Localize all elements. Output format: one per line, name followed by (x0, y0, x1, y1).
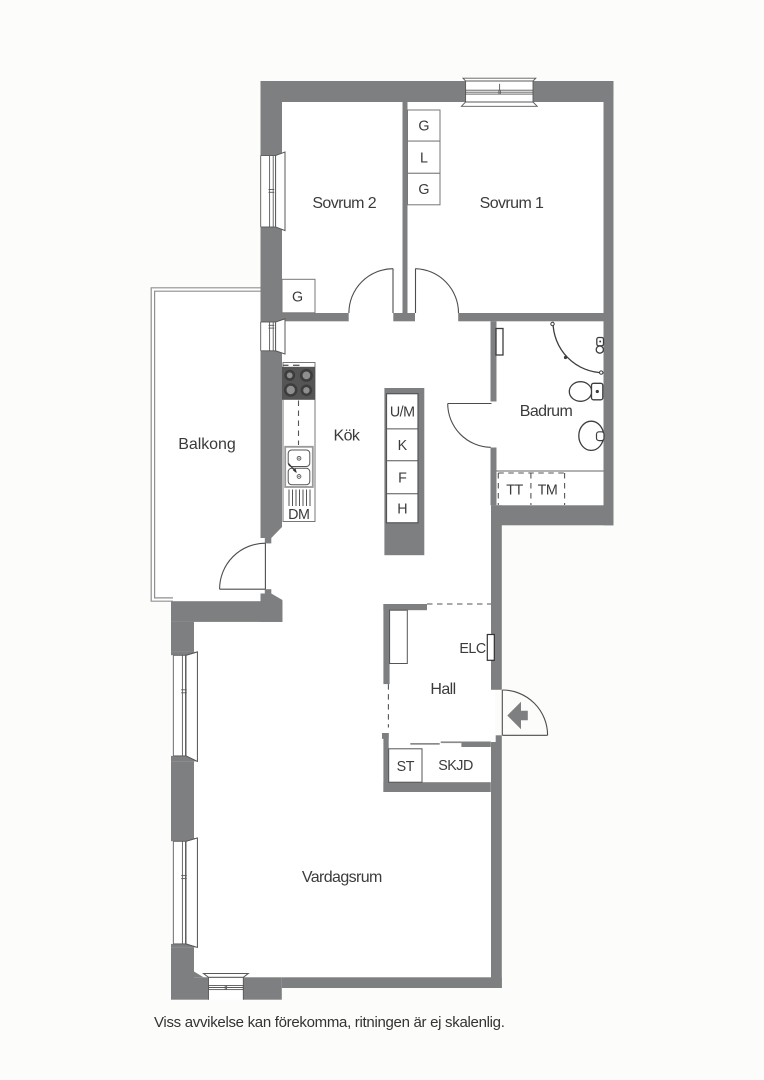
svg-text:F: F (398, 470, 407, 486)
svg-text:Viss avvikelse kan förekomma,: Viss avvikelse kan förekomma, ritningen … (154, 1014, 505, 1031)
svg-text:Kök: Kök (334, 427, 361, 444)
svg-text:Vardagsrum: Vardagsrum (302, 869, 382, 886)
svg-text:Sovrum 2: Sovrum 2 (312, 195, 376, 212)
svg-text:TM: TM (538, 482, 558, 498)
svg-text:U/M: U/M (390, 405, 415, 421)
svg-text:Sovrum 1: Sovrum 1 (480, 195, 544, 212)
svg-text:G: G (418, 119, 429, 135)
svg-text:G: G (418, 182, 429, 198)
svg-text:ST: ST (397, 759, 415, 775)
svg-text:ELC: ELC (459, 641, 485, 657)
svg-text:L: L (420, 150, 428, 166)
svg-text:SKJD: SKJD (438, 758, 473, 774)
svg-text:K: K (398, 438, 408, 454)
svg-text:Badrum: Badrum (520, 403, 573, 420)
svg-text:DM: DM (288, 507, 309, 523)
svg-text:G: G (292, 290, 303, 306)
svg-text:H: H (397, 501, 407, 517)
svg-text:Hall: Hall (430, 681, 455, 698)
svg-text:TT: TT (506, 482, 523, 498)
svg-text:Balkong: Balkong (178, 436, 235, 453)
